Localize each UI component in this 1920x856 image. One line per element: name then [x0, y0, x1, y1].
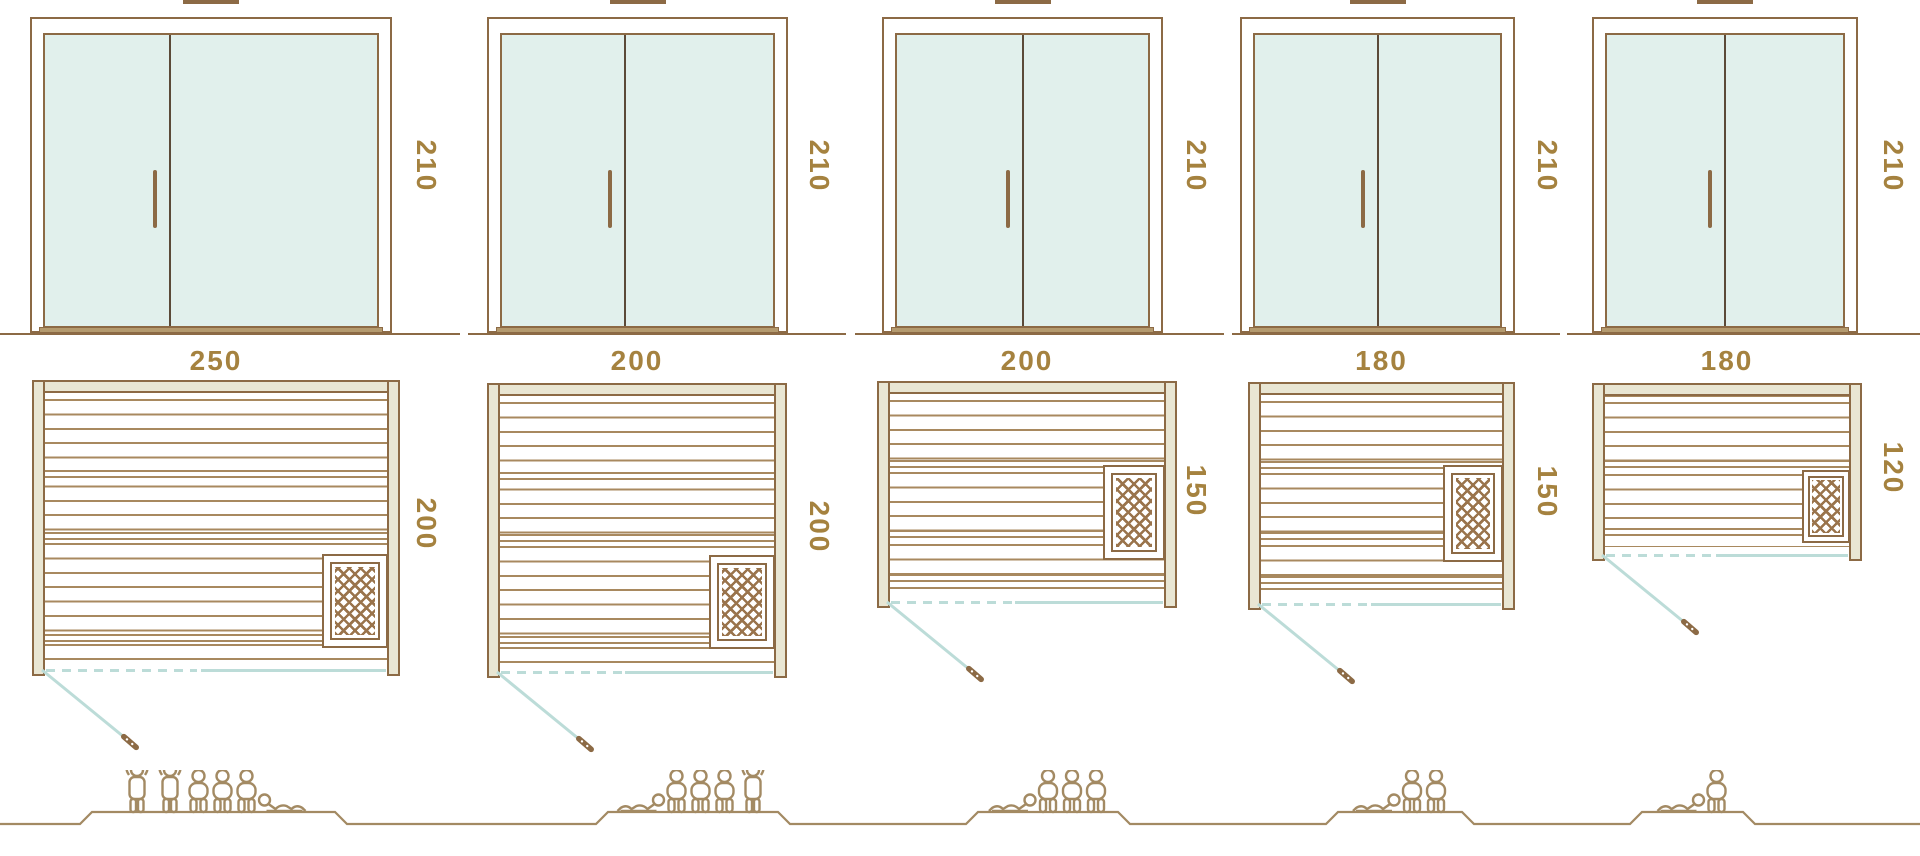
people-group	[1658, 770, 1726, 812]
door-height-label: 210	[1181, 106, 1211, 226]
door-glass-panel	[500, 33, 775, 328]
roof-vent-icon	[1350, 0, 1406, 4]
person-seated-icon	[214, 770, 232, 812]
door-height-label: 210	[411, 106, 441, 226]
glass-front-line	[1015, 601, 1163, 604]
heater-icon	[709, 555, 775, 649]
bench-edge-line	[500, 534, 774, 542]
door-divider-line	[1022, 35, 1024, 326]
door-handle-icon	[1361, 170, 1365, 228]
heater-hatch	[1812, 480, 1840, 533]
bench-edge-line	[1261, 576, 1502, 584]
heater-icon	[1103, 465, 1165, 560]
bench-edge-line	[45, 532, 387, 540]
door-swing-icon	[1592, 553, 1742, 653]
door-divider-line	[624, 35, 626, 326]
people-group	[618, 770, 764, 812]
door-height-label: 210	[804, 106, 834, 226]
glass-front-line	[625, 671, 773, 674]
person-seated-icon	[1403, 770, 1421, 812]
plan-wall-right	[387, 380, 400, 676]
capacity-baseline	[0, 812, 1920, 824]
plan-wall-top	[877, 381, 1177, 394]
person-seated-icon	[1427, 770, 1445, 812]
plan-wall-right	[1502, 382, 1515, 610]
plan-wall-left	[487, 383, 500, 678]
person-lying-icon	[989, 795, 1036, 812]
person-standing-icon	[743, 770, 764, 812]
person-seated-icon	[1087, 770, 1105, 812]
plan-wall-left	[877, 381, 890, 608]
capacity-strip	[0, 770, 1920, 856]
ground-line	[1567, 333, 1920, 335]
door-swing-icon	[1248, 602, 1398, 702]
person-lying-icon	[1353, 795, 1400, 812]
bench-edge-line	[500, 472, 774, 480]
people-group	[1353, 770, 1445, 812]
glass-front-line	[201, 669, 386, 672]
bench-edge-line	[890, 574, 1164, 582]
door-handle-swing-icon	[575, 735, 595, 754]
heater-icon	[1443, 465, 1503, 562]
person-standing-icon	[127, 770, 148, 812]
door-handle-icon	[1006, 170, 1010, 228]
people-group	[127, 770, 306, 812]
plan-wall-top	[1592, 383, 1862, 396]
plan-width-label: 200	[947, 346, 1107, 376]
door-handle-icon	[608, 170, 612, 228]
plan-width-label: 250	[136, 346, 296, 376]
door-height-label: 210	[1878, 106, 1908, 226]
door-divider-line	[1377, 35, 1379, 326]
sauna-size-diagram: 2102502002102002002102001502101801502101…	[0, 0, 1920, 856]
person-seated-icon	[1063, 770, 1081, 812]
roof-vent-icon	[1697, 0, 1753, 4]
person-seated-icon	[238, 770, 256, 812]
heater-hatch	[1116, 478, 1152, 547]
roof-vent-icon	[995, 0, 1051, 4]
person-seated-icon	[1039, 770, 1057, 812]
ground-line	[1232, 333, 1560, 335]
plan-wall-left	[1248, 382, 1261, 610]
plan-width-label: 180	[1302, 346, 1462, 376]
heater-hatch	[1456, 478, 1490, 549]
door-handle-swing-icon	[965, 665, 985, 684]
heater-hatch	[335, 567, 375, 635]
door-handle-swing-icon	[1680, 618, 1700, 637]
plan-depth-label: 150	[1181, 431, 1211, 551]
plan-width-label: 200	[557, 346, 717, 376]
person-seated-icon	[692, 770, 710, 812]
door-divider-line	[1724, 35, 1726, 326]
plan-width-label: 180	[1647, 346, 1807, 376]
door-handle-icon	[1708, 170, 1712, 228]
plan-depth-label: 200	[804, 467, 834, 587]
ground-line	[0, 333, 460, 335]
door-divider-line	[169, 35, 171, 326]
plan-depth-label: 200	[411, 464, 441, 584]
plan-wall-left	[1592, 383, 1605, 561]
people-group	[989, 770, 1105, 812]
door-height-label: 210	[1532, 106, 1562, 226]
plan-wall-right	[774, 383, 787, 678]
door-handle-swing-icon	[120, 733, 140, 752]
door-swing-icon	[877, 600, 1027, 700]
door-glass-panel	[43, 33, 379, 328]
door-swing-icon	[487, 670, 637, 770]
plan-depth-label: 120	[1878, 408, 1908, 528]
ground-line	[468, 333, 846, 335]
plan-wall-left	[32, 380, 45, 676]
bench-edge-line	[45, 470, 387, 478]
roof-vent-icon	[610, 0, 666, 4]
plan-wall-right	[1164, 381, 1177, 608]
plan-wall-right	[1849, 383, 1862, 561]
plan-wall-top	[32, 380, 400, 393]
heater-icon	[1802, 470, 1850, 543]
door-handle-swing-icon	[1336, 667, 1356, 686]
person-seated-icon	[668, 770, 686, 812]
person-seated-icon	[1708, 770, 1726, 812]
ground-line	[855, 333, 1224, 335]
person-seated-icon	[190, 770, 208, 812]
heater-icon	[322, 554, 388, 648]
person-lying-icon	[259, 795, 306, 812]
plan-wall-top	[487, 383, 787, 396]
door-handle-icon	[153, 170, 157, 228]
bench-edge-line	[1605, 460, 1849, 468]
door-swing-icon	[32, 668, 182, 768]
person-seated-icon	[716, 770, 734, 812]
person-lying-icon	[618, 795, 665, 812]
plan-wall-top	[1248, 382, 1515, 395]
person-lying-icon	[1658, 795, 1705, 812]
plan-depth-label: 150	[1532, 432, 1562, 552]
heater-hatch	[722, 568, 762, 636]
roof-vent-icon	[183, 0, 239, 4]
person-standing-icon	[160, 770, 181, 812]
